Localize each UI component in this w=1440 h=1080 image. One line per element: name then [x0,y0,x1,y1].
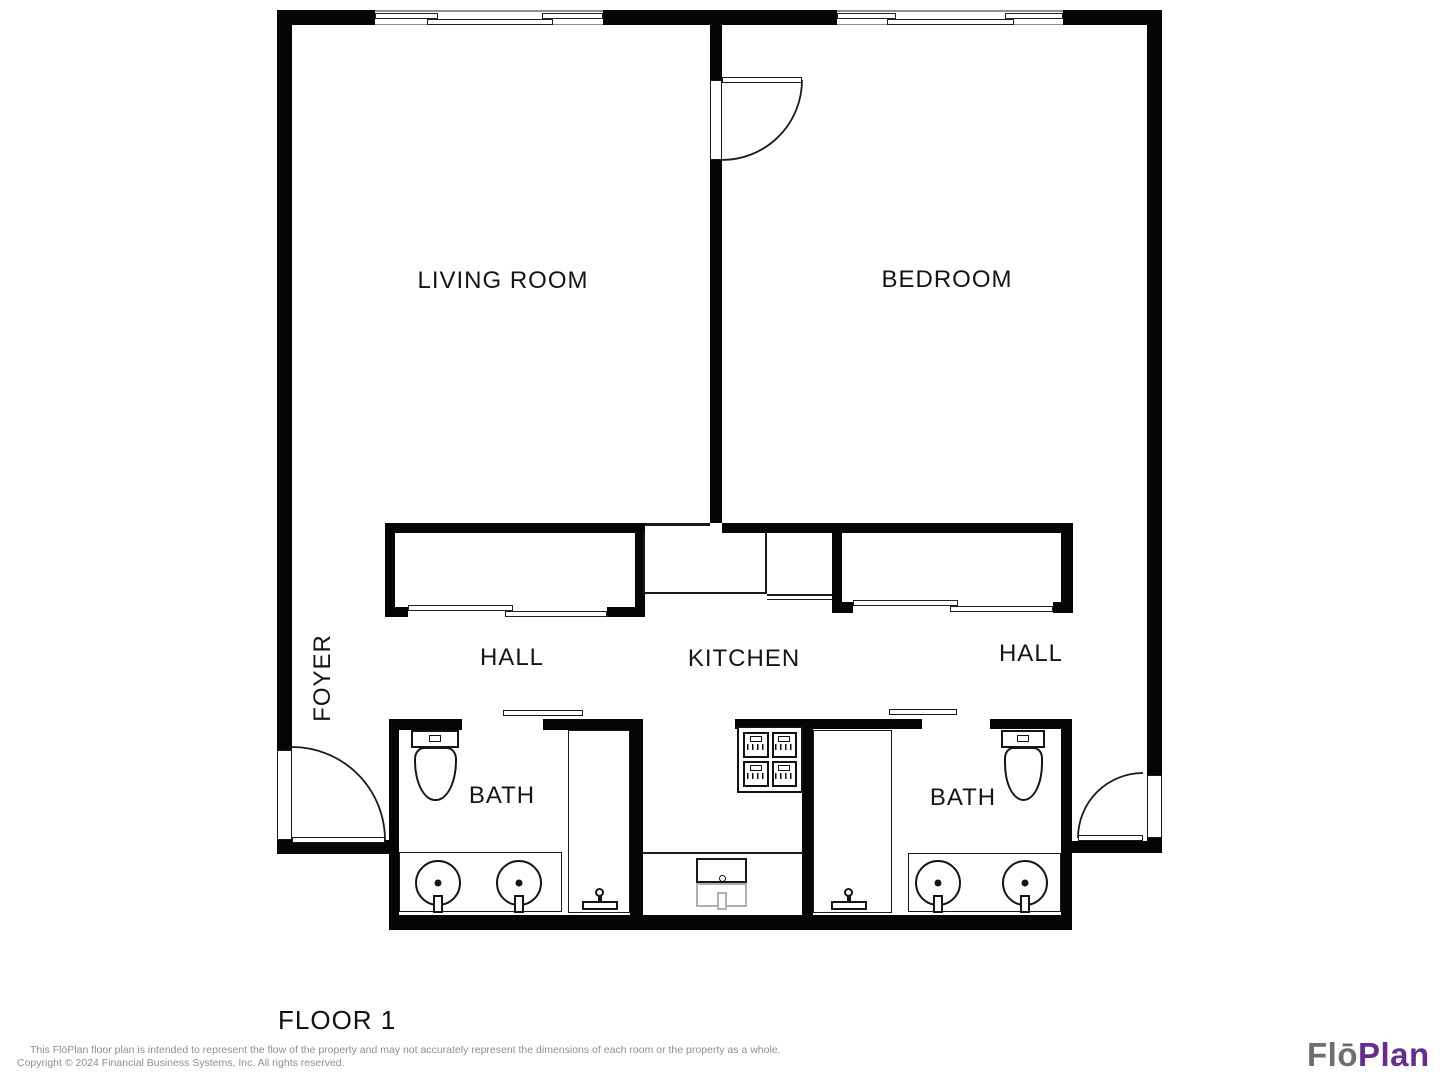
kitchen-faucet-icon [717,892,727,910]
disclaimer-line-1: This FlōPlan floor plan is intended to r… [17,1044,1427,1057]
stove-icon [737,726,803,793]
room-label-foyer: FOYER [309,634,337,722]
shower-left-enclosure [568,730,630,913]
sink-icon-2 [496,860,542,906]
stove-burner-icon [772,732,798,758]
kitchen-sink-drain-icon [719,875,726,882]
floor-plan-canvas: LIVING ROOM BEDROOM HALL KITCHEN HALL FO… [0,0,1440,1080]
toilet-left-button-icon [429,735,441,742]
logo-text-purple: Plan [1358,1036,1430,1073]
room-label-hall-right: HALL [999,640,1063,668]
right-door-swing-arc [1078,773,1143,838]
room-label-bedroom: BEDROOM [881,266,1012,294]
sink-icon-3 [915,860,961,906]
shower-right-bar-icon [831,901,867,910]
stove-burner-icon [743,761,769,787]
room-label-living-room: LIVING ROOM [417,267,588,295]
room-label-bath-right: BATH [930,784,996,812]
disclaimer-line-2: Copyright © 2024 Financial Business Syst… [17,1057,1427,1070]
room-label-hall-left: HALL [480,644,544,672]
sink-icon-1 [415,860,461,906]
entry-door-swing-arc [292,747,385,840]
bedroom-door-swing-arc [722,80,802,160]
shower-right-enclosure [813,730,892,913]
sink-icon-4 [1002,860,1048,906]
stove-burner-icon [772,761,798,787]
room-label-kitchen: KITCHEN [688,645,800,673]
floplan-logo: FlōPlan [1307,1036,1430,1074]
logo-text-gray: Flō [1307,1036,1358,1073]
stove-burner-icon [743,732,769,758]
toilet-right-button-icon [1017,735,1029,742]
floor-label: FLOOR 1 [278,1005,396,1036]
room-label-bath-left: BATH [469,782,535,810]
shower-left-bar-icon [582,901,618,910]
disclaimer: This FlōPlan floor plan is intended to r… [17,1044,1427,1070]
plan-lines-overlay [0,0,1440,1080]
kitchen-counter-edge [643,852,803,854]
